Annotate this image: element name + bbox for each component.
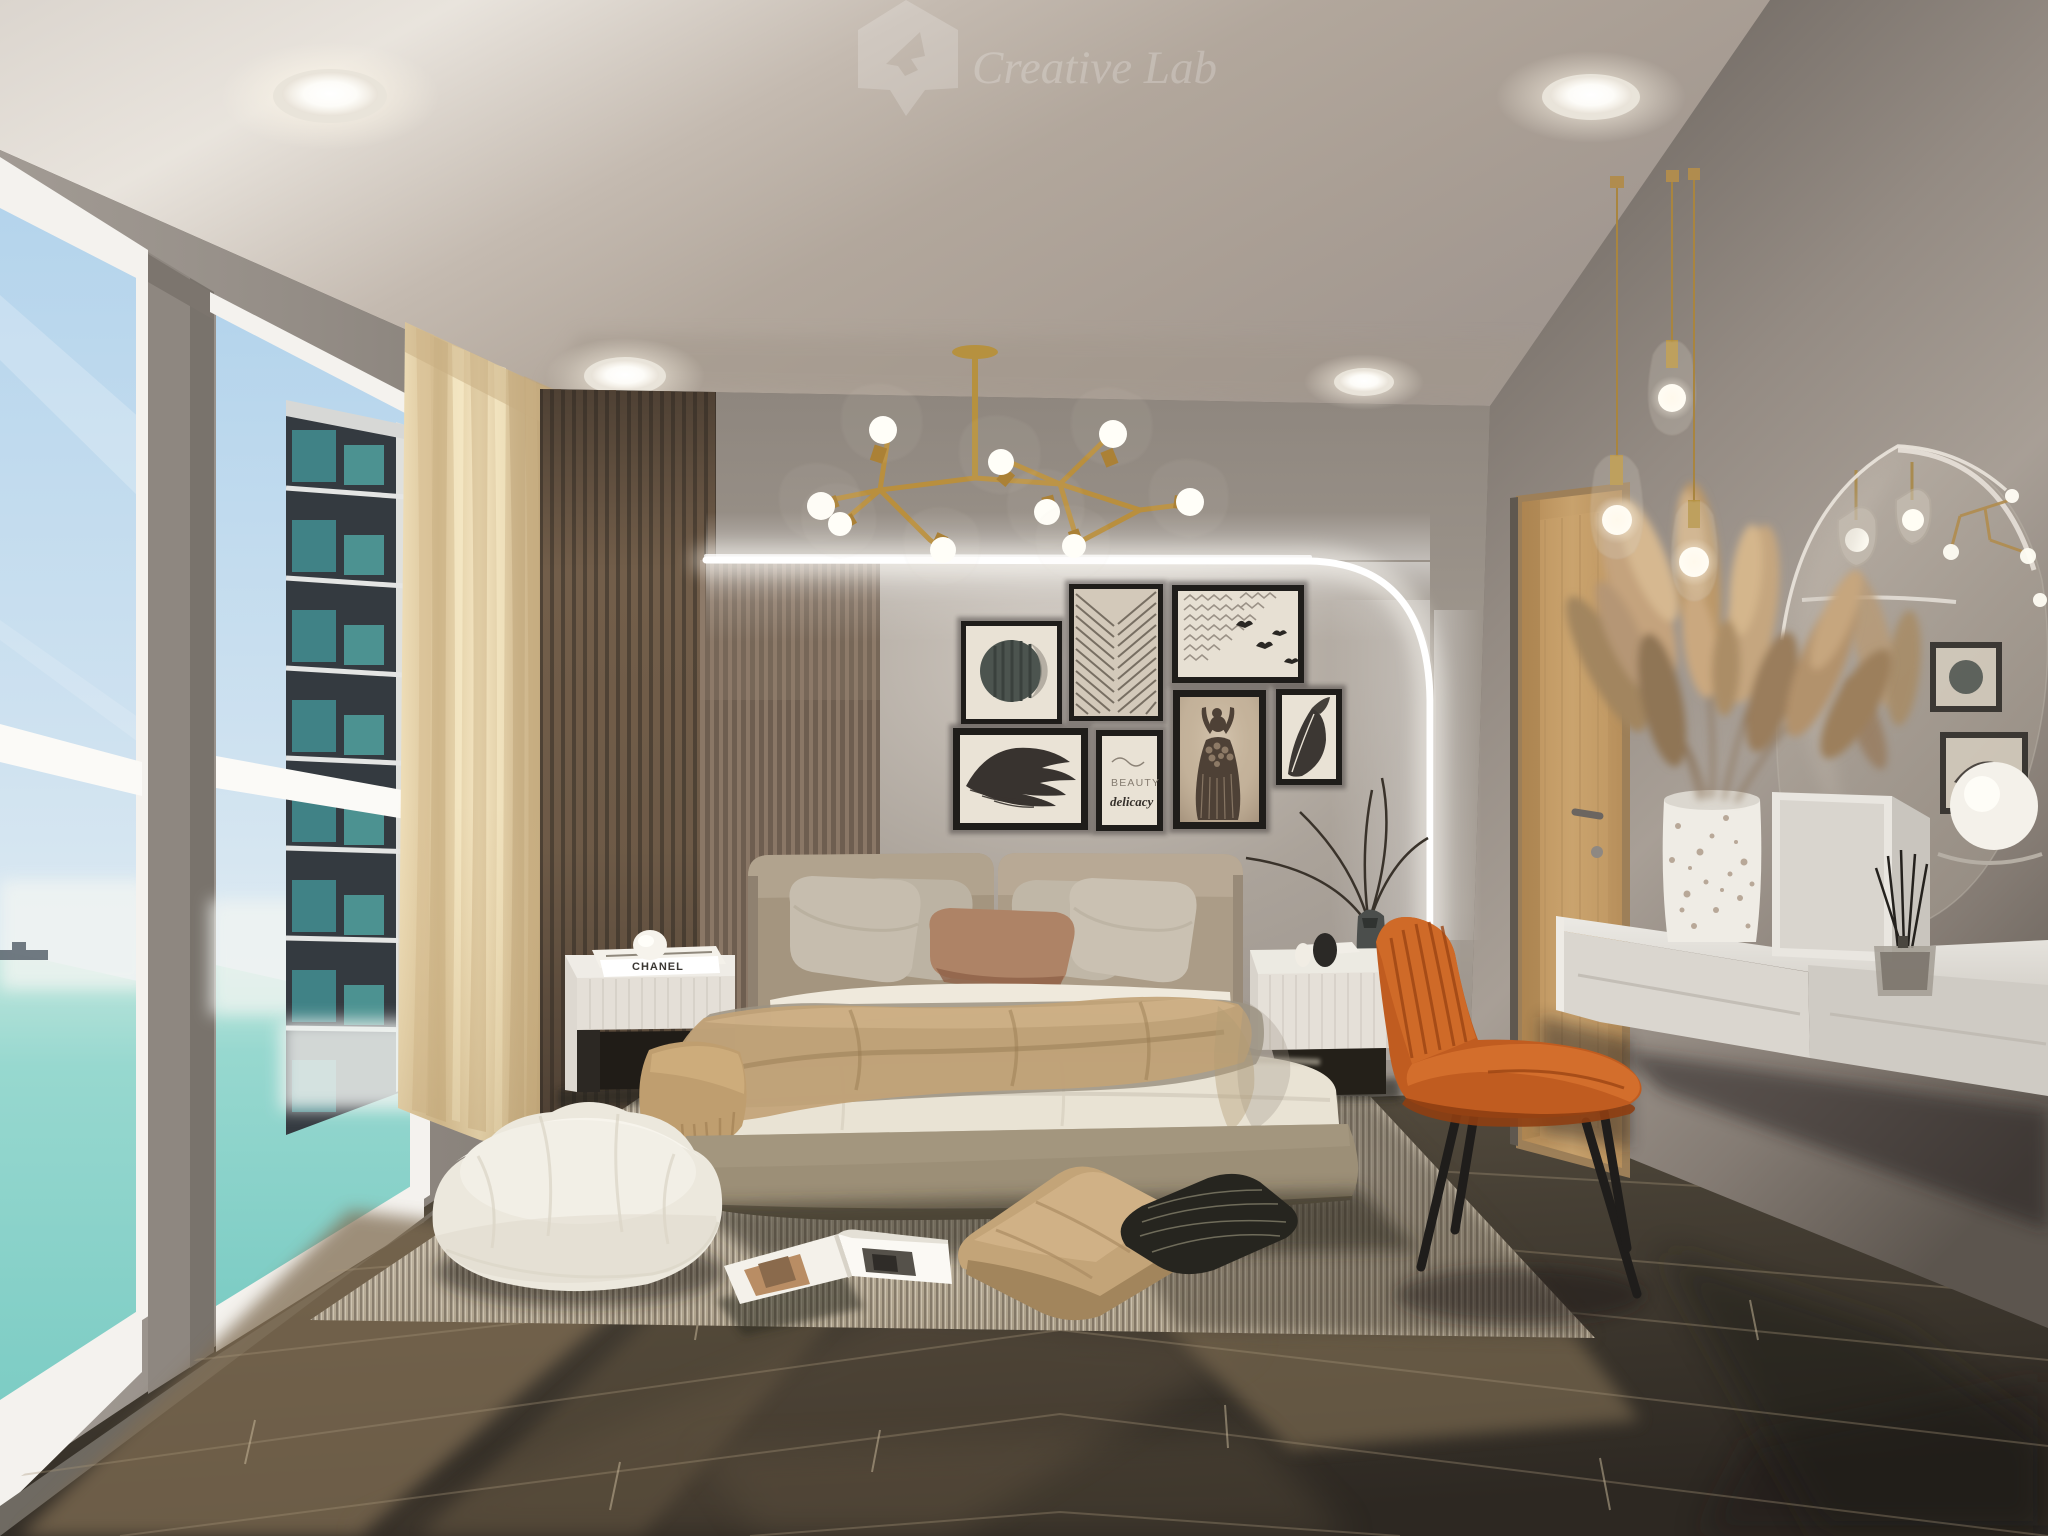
svg-text:delicacy: delicacy (1110, 794, 1154, 809)
svg-text:CHANEL: CHANEL (632, 961, 684, 973)
svg-text:BEAUTY: BEAUTY (1111, 777, 1160, 789)
svg-text:Creative Lab: Creative Lab (972, 42, 1217, 94)
